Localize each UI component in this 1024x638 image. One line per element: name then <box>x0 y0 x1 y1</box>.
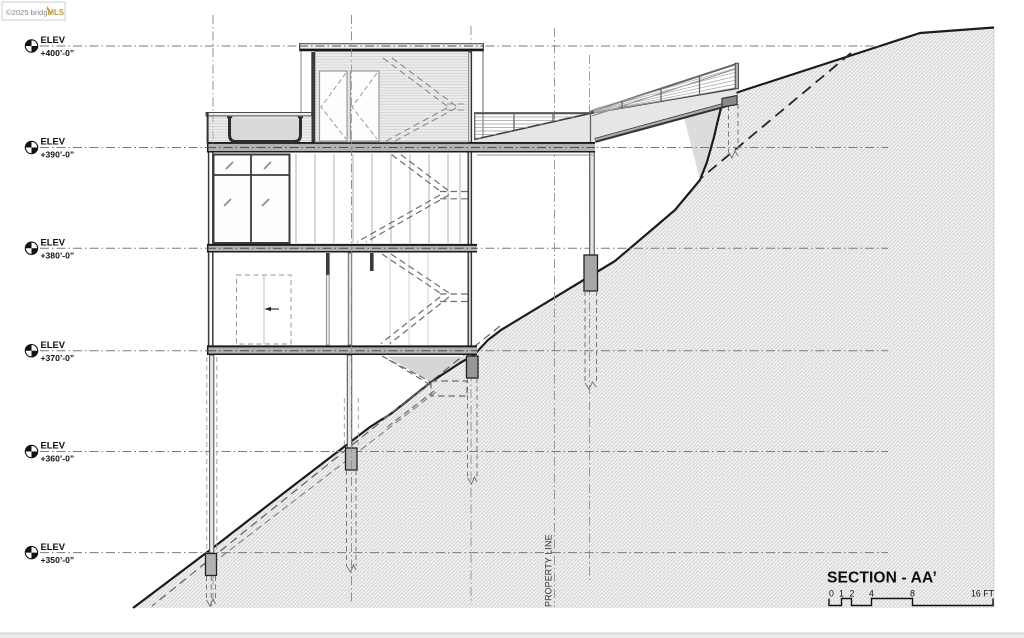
svg-text:+400’-0”: +400’-0” <box>41 48 75 58</box>
svg-text:2: 2 <box>850 589 855 599</box>
svg-text:+390’-0”: +390’-0” <box>41 150 75 160</box>
svg-text:ELEV: ELEV <box>41 339 66 350</box>
svg-text:©2025 bridge: ©2025 bridge <box>6 8 52 17</box>
svg-text:+380’-0”: +380’-0” <box>41 251 75 261</box>
svg-text:ELEV: ELEV <box>41 440 66 451</box>
svg-text:ELEV: ELEV <box>41 34 66 45</box>
svg-text:+360’-0”: +360’-0” <box>41 454 75 464</box>
svg-text:ELEV: ELEV <box>41 136 66 147</box>
svg-text:0: 0 <box>829 589 834 599</box>
svg-text:MLS: MLS <box>48 8 64 17</box>
svg-text:+350’-0”: +350’-0” <box>41 555 75 565</box>
svg-text:ELEV: ELEV <box>41 237 66 248</box>
svg-text:16 FT: 16 FT <box>971 589 995 599</box>
svg-text:4: 4 <box>869 589 874 599</box>
svg-text:SECTION - AA’: SECTION - AA’ <box>827 570 937 587</box>
svg-text:PROPERTY LINE: PROPERTY LINE <box>544 534 554 607</box>
svg-text:1: 1 <box>839 589 844 599</box>
svg-text:8: 8 <box>910 589 915 599</box>
svg-text:ELEV: ELEV <box>41 541 66 552</box>
svg-text:+370’-0”: +370’-0” <box>41 353 75 363</box>
